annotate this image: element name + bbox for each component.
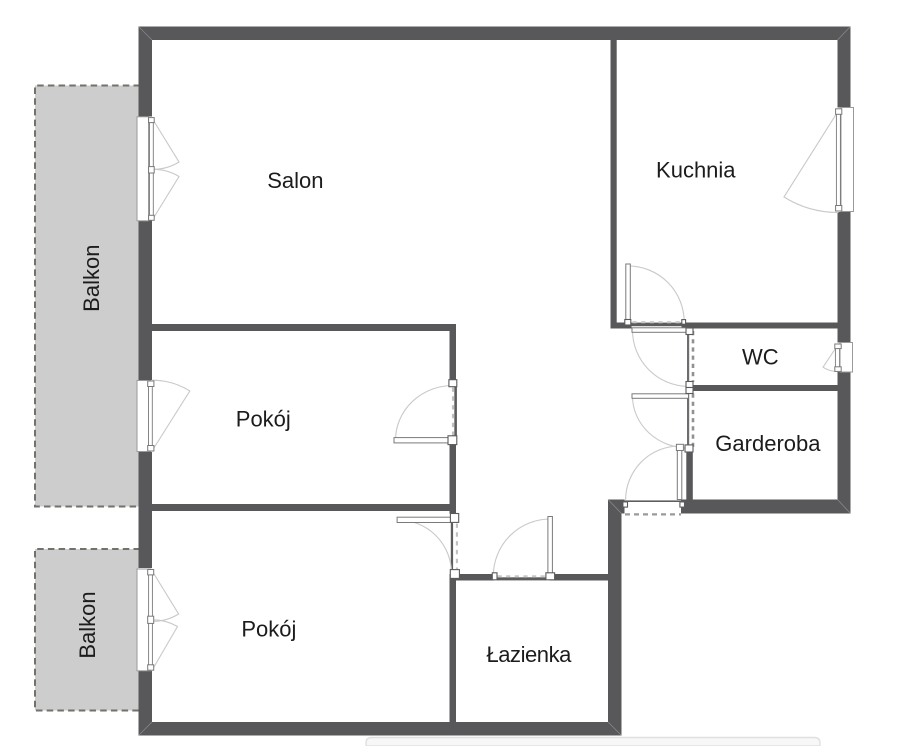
svg-text:WC: WC [742, 344, 779, 369]
svg-text:Balkon: Balkon [79, 245, 104, 312]
svg-text:Salon: Salon [267, 168, 323, 193]
svg-text:Pokój: Pokój [241, 617, 296, 642]
svg-text:Balkon: Balkon [75, 591, 100, 658]
svg-text:Kuchnia: Kuchnia [656, 157, 736, 182]
svg-text:Pokój: Pokój [236, 406, 291, 431]
svg-text:Garderoba: Garderoba [715, 431, 821, 456]
svg-text:Łazienka: Łazienka [486, 642, 572, 667]
